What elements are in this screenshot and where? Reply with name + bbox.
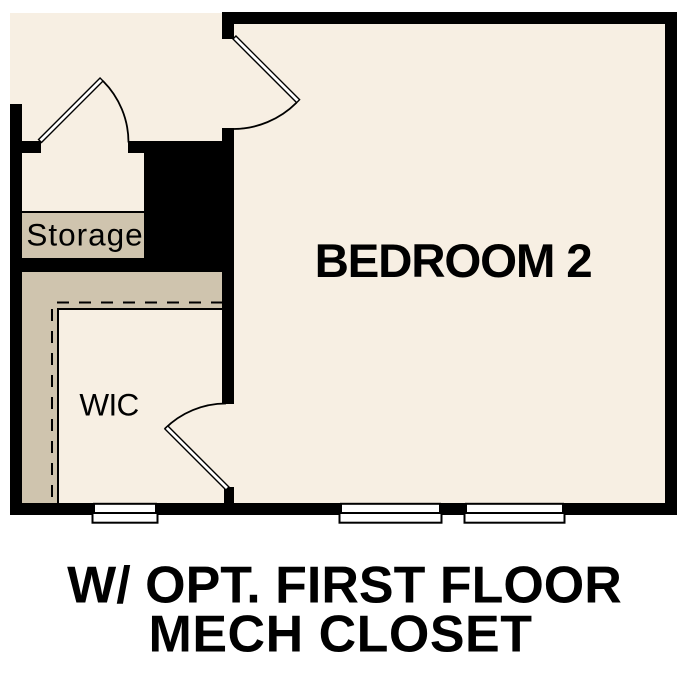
svg-text:MECH CLOSET: MECH CLOSET xyxy=(149,606,533,664)
svg-text:BEDROOM 2: BEDROOM 2 xyxy=(315,235,592,288)
svg-text:Storage: Storage xyxy=(26,217,143,253)
svg-text:WIC: WIC xyxy=(79,387,138,423)
